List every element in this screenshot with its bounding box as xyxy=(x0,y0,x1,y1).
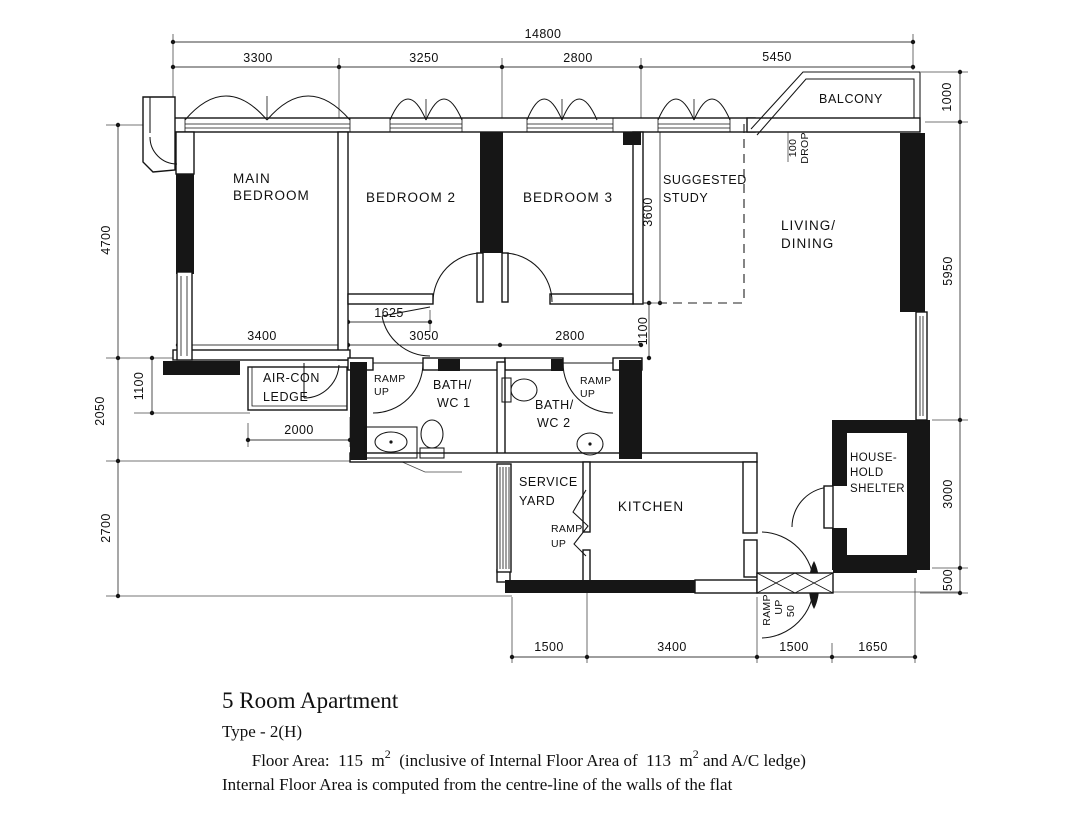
note-ramp-bath1-2: UP xyxy=(374,386,389,398)
living-side-window xyxy=(916,312,927,420)
room-label-bedroom3: BEDROOM 3 xyxy=(523,190,613,205)
dim-right-500: 500 xyxy=(941,569,955,591)
dim-bottom-1500a: 1500 xyxy=(534,640,563,654)
dim-right-3000: 3000 xyxy=(941,479,955,508)
room-label-bath1-2: WC 1 xyxy=(437,396,471,410)
dim-int-1100: 1100 xyxy=(636,317,650,345)
room-label-balcony: BALCONY xyxy=(819,92,883,106)
floor-area-note: Internal Floor Area is computed from the… xyxy=(222,775,733,794)
entry-bay xyxy=(143,97,175,172)
dim-int-2000: 2000 xyxy=(284,423,313,437)
room-label-service-yard-1: SERVICE xyxy=(519,475,578,489)
floor-plan-page: 14800 3300 3250 2800 5450 4700 2050 1100… xyxy=(0,0,1078,830)
floor-plan-drawing: 14800 3300 3250 2800 5450 4700 2050 1100… xyxy=(0,0,1078,830)
dim-left-4700: 4700 xyxy=(99,225,113,254)
dim-int-2800: 2800 xyxy=(555,329,584,343)
dim-top-2800: 2800 xyxy=(563,51,592,65)
room-label-living-2: DINING xyxy=(781,236,834,251)
apartment-type: Type - 2(H) xyxy=(222,722,302,741)
note-ramp-entrance-1: RAMP xyxy=(761,594,773,626)
room-label-main-bedroom-2: BEDROOM xyxy=(233,188,310,203)
note-ramp-bath2-2: UP xyxy=(580,388,595,400)
bath2-toilet xyxy=(502,378,537,402)
note-ramp-bath1-1: RAMP xyxy=(374,373,406,385)
dim-right-1000: 1000 xyxy=(940,82,954,111)
note-ramp-service-2: UP xyxy=(551,538,566,550)
dim-top-3300: 3300 xyxy=(243,51,272,65)
room-label-bath2-1: BATH/ xyxy=(535,398,574,412)
note-ramp-bath2-1: RAMP xyxy=(580,375,612,387)
room-label-kitchen: KITCHEN xyxy=(618,499,684,514)
note-ramp-entrance-3: 50 xyxy=(785,605,797,617)
dim-int-3600: 3600 xyxy=(641,197,655,226)
dim-bottom-3400: 3400 xyxy=(657,640,686,654)
room-label-aircon-2: LEDGE xyxy=(263,390,308,404)
room-label-shelter-1: HOUSE- xyxy=(850,452,897,464)
suggested-study-outline xyxy=(643,124,744,303)
dim-top-3250: 3250 xyxy=(409,51,438,65)
bath2-sink xyxy=(577,433,603,455)
dim-bottom-1500b: 1500 xyxy=(779,640,808,654)
room-label-bath2-2: WC 2 xyxy=(537,416,571,430)
bedroom2-door xyxy=(433,253,483,302)
room-label-study-2: STUDY xyxy=(663,191,708,205)
dim-left-1100: 1100 xyxy=(132,372,146,400)
room-label-main-bedroom-1: MAIN xyxy=(233,171,271,186)
dim-right-5950: 5950 xyxy=(941,256,955,285)
main-bedroom-side-window xyxy=(177,272,192,360)
service-yard-louver-window xyxy=(497,464,511,572)
room-label-service-yard-2: YARD xyxy=(519,494,555,508)
bedroom3-door xyxy=(502,253,552,302)
floor-area-line: Floor Area: 115 m2 (inclusive of Interna… xyxy=(222,747,827,770)
dim-overall-width: 14800 xyxy=(525,27,562,41)
dim-top-5450: 5450 xyxy=(762,50,791,64)
title-block: 5 Room Apartment Type - 2(H) Floor Area:… xyxy=(222,688,827,794)
note-ramp-service-1: RAMP xyxy=(551,523,583,535)
bath1-toilet xyxy=(420,420,444,458)
dim-left-2700: 2700 xyxy=(99,513,113,542)
room-label-bath1-1: BATH/ xyxy=(433,378,472,392)
room-label-living-1: LIVING/ xyxy=(781,218,836,233)
shelter-door xyxy=(792,486,833,528)
room-label-study-1: SUGGESTED xyxy=(663,173,747,187)
dim-int-3400: 3400 xyxy=(247,329,276,343)
room-label-shelter-3: SHELTER xyxy=(850,483,905,495)
room-label-shelter-2: HOLD xyxy=(850,467,884,479)
dim-balcony-drop-word: DROP xyxy=(799,132,811,164)
dim-int-3050: 3050 xyxy=(409,329,438,343)
dim-balcony-drop-value: 100 xyxy=(787,139,799,157)
dim-left-2050: 2050 xyxy=(93,396,107,425)
apartment-title: 5 Room Apartment xyxy=(222,688,399,713)
room-label-aircon-1: AIR-CON xyxy=(263,371,320,385)
dim-bottom-1650: 1650 xyxy=(858,640,887,654)
room-label-bedroom2: BEDROOM 2 xyxy=(366,190,456,205)
dim-int-1625: 1625 xyxy=(374,306,403,320)
note-ramp-entrance-2: UP xyxy=(773,599,785,614)
